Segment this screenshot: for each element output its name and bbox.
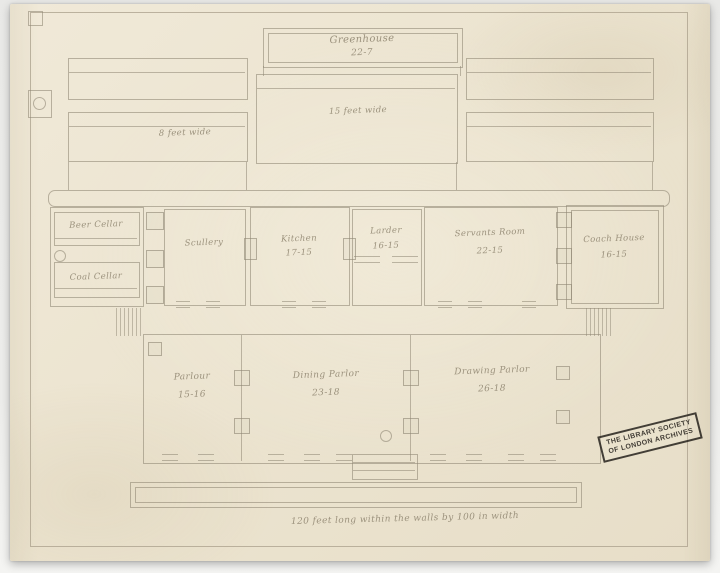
connector-wall-1 <box>68 162 69 190</box>
coal-cellar-shelf-line <box>55 288 137 289</box>
left-bed-upper-line <box>69 72 245 73</box>
window-mark <box>304 454 320 461</box>
cellar-passage-well <box>54 250 66 262</box>
terrace-inner-wall <box>135 487 577 503</box>
larder-shelf <box>354 256 380 263</box>
wall-pier <box>146 212 164 230</box>
parlour-dining-wall <box>241 335 242 461</box>
right-bed-lower-wall <box>466 112 654 162</box>
chimney-pier <box>556 366 570 380</box>
left-stairs-hatch <box>116 308 142 336</box>
window-mark <box>466 454 482 461</box>
left-bed-upper-wall <box>68 58 248 100</box>
right-stairs-hatch <box>586 308 612 336</box>
middle-bed-line <box>257 88 455 89</box>
dining-drawing-wall <box>410 335 411 461</box>
window-mark <box>198 454 214 461</box>
chimney-pier <box>403 418 419 434</box>
garden-corner-well <box>33 97 46 110</box>
porch-step-line <box>353 470 415 471</box>
chimney-pier <box>403 370 419 386</box>
right-bed-lower-line <box>467 126 651 127</box>
window-mark <box>508 454 524 461</box>
frame-corner-box <box>28 11 43 26</box>
room-scullery <box>164 209 246 306</box>
connector-wall-3 <box>456 162 457 190</box>
window-mark <box>522 301 536 308</box>
right-bed-upper-line <box>467 72 651 73</box>
connector-wall-4 <box>652 162 653 190</box>
larder-shelf <box>392 256 418 263</box>
window-mark <box>336 454 352 461</box>
window-mark <box>176 301 190 308</box>
window-mark <box>268 454 284 461</box>
wall-pier <box>146 250 164 268</box>
window-mark <box>312 301 326 308</box>
greenhouse-right-connector <box>460 66 461 76</box>
chimney-pier <box>234 370 250 386</box>
window-mark <box>282 301 296 308</box>
window-mark <box>438 301 452 308</box>
chimney-pier <box>148 342 162 356</box>
connector-wall-2 <box>246 162 247 190</box>
beer-cellar-shelf-line <box>55 238 137 239</box>
entrance-porch <box>352 454 418 480</box>
chimney-pier <box>234 418 250 434</box>
window-mark <box>430 454 446 461</box>
window-mark <box>468 301 482 308</box>
window-mark <box>540 454 556 461</box>
wall-pier <box>146 286 164 304</box>
porch-step-line <box>353 462 415 463</box>
chimney-pier <box>556 410 570 424</box>
window-mark <box>206 301 220 308</box>
hall-circle-mark <box>380 430 392 442</box>
window-mark <box>162 454 178 461</box>
scanned-plan-page: Greenhouse 22-7 8 feet wide 15 feet wide… <box>0 0 720 573</box>
right-bed-upper-wall <box>466 58 654 100</box>
